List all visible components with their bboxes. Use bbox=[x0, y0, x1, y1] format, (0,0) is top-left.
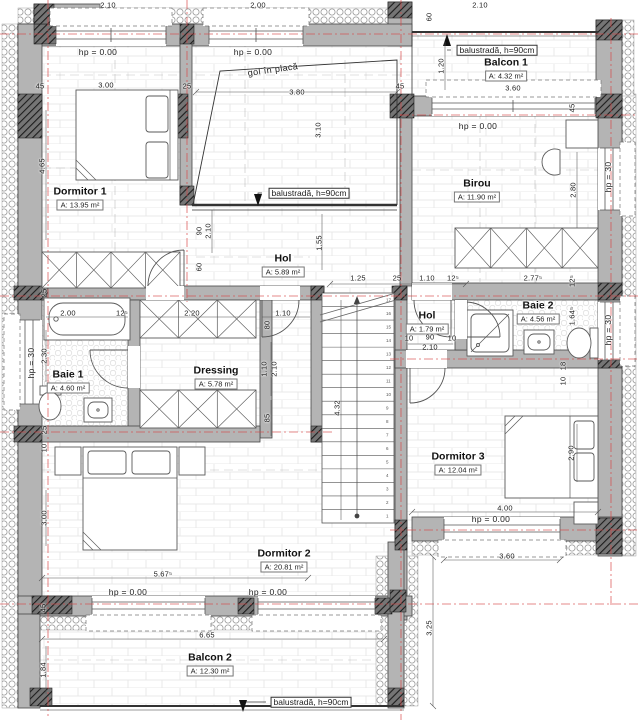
dimension-label: 12⁵ bbox=[447, 274, 459, 282]
dimension-label: 1.64⁵ bbox=[568, 307, 576, 326]
room-name: Birou bbox=[463, 178, 490, 190]
dimension-label: 2.20 bbox=[184, 309, 199, 317]
dimension-label: 12⁵ bbox=[568, 275, 576, 287]
room-area: A: 12.30 m² bbox=[187, 666, 234, 677]
room-label: Dormitor 1A: 13.95 m² bbox=[53, 186, 106, 211]
parapet-height-label: hp = 30 bbox=[27, 348, 36, 379]
room-area: A: 4.32 m² bbox=[485, 71, 528, 82]
balustrade-callout: balustradă, h=90cm bbox=[457, 45, 538, 56]
dimension-label: 12⁵ bbox=[116, 309, 128, 317]
parapet-height-label: hp = 0.00 bbox=[109, 588, 147, 597]
desk bbox=[566, 120, 598, 148]
room-name: Balcon 1 bbox=[484, 57, 528, 69]
dimension-label: 1.55 bbox=[315, 235, 323, 250]
dimension-label: 3.80 bbox=[289, 88, 304, 96]
room-area: A: 5.78 m² bbox=[195, 379, 238, 390]
bathtub bbox=[44, 298, 130, 340]
room-area: A: 20.81 m² bbox=[261, 562, 308, 573]
dimension-label: 45 bbox=[568, 104, 576, 113]
parapet-height-label: hp = 0.00 bbox=[459, 122, 497, 131]
dimension-label: 90 bbox=[195, 227, 203, 236]
parapet-height-label: hp = 0.00 bbox=[234, 48, 272, 57]
room-area: A: 4.56 m² bbox=[517, 314, 560, 325]
room-area: A: 4.60 m² bbox=[47, 383, 90, 394]
dimension-label: 1.10 bbox=[260, 361, 268, 376]
room-name: Dressing bbox=[194, 365, 239, 377]
stair-step-number: 16 bbox=[386, 311, 392, 316]
dimension-label: 25 bbox=[40, 289, 48, 298]
room-name: Balcon 2 bbox=[188, 652, 232, 664]
room-label: HolA: 1.79 m² bbox=[406, 310, 449, 335]
room-name: Hol bbox=[419, 310, 436, 322]
dimension-label: 1.84 bbox=[39, 662, 47, 677]
dimension-label: 1.20 bbox=[437, 58, 445, 73]
stair-step-number: 12 bbox=[386, 365, 392, 370]
dimension-label: 80 bbox=[263, 321, 271, 330]
stair-step-number: 14 bbox=[386, 338, 392, 343]
dimension-label: 2.00 bbox=[250, 1, 265, 9]
dimension-label: 4.65 bbox=[38, 158, 46, 173]
dimension-label: 45 bbox=[36, 82, 45, 90]
room-label: BirouA: 11.90 m² bbox=[454, 178, 500, 203]
wardrobe-dormitor1 bbox=[42, 252, 180, 288]
dimension-label: 2.10 bbox=[204, 223, 212, 238]
dimension-label: 10 bbox=[40, 444, 48, 453]
balustrade-callout: balustradă, h=90cm bbox=[269, 188, 350, 199]
room-label: Balcon 2A: 12.30 m² bbox=[187, 652, 234, 677]
dimension-label: 2.10 bbox=[270, 361, 278, 376]
dimension-label: 18 bbox=[559, 362, 567, 371]
dimension-label: 85 bbox=[263, 414, 271, 423]
stair-step-number: 11 bbox=[386, 378, 391, 383]
dimension-label: 3.00 bbox=[40, 510, 48, 525]
dimension-label: 45 bbox=[39, 604, 47, 613]
wardrobe-birou bbox=[455, 228, 598, 268]
dimension-label: 3.10 bbox=[314, 122, 322, 137]
shower bbox=[467, 310, 513, 356]
parapet-height-label: hp = 30 bbox=[604, 162, 613, 193]
dimension-label: 2.10 bbox=[100, 1, 115, 9]
room-name: Baie 1 bbox=[53, 369, 84, 381]
dimension-label: 25 bbox=[40, 426, 48, 435]
dimension-label: 25 bbox=[393, 274, 402, 282]
dimension-label: 2.80 bbox=[569, 182, 577, 197]
room-name: Hol bbox=[275, 253, 292, 265]
dimension-label: 2.77⁵ bbox=[524, 274, 543, 282]
wardrobe-dressing-bottom bbox=[140, 390, 256, 428]
dimension-label: 1.25 bbox=[350, 274, 365, 282]
dimension-label: 5.67⁵ bbox=[154, 570, 173, 578]
dimension-label: 1.10 bbox=[275, 309, 290, 317]
parapet-height-label: hp = 0.00 bbox=[472, 515, 510, 524]
parapet-height-label: hp = 30 bbox=[604, 315, 613, 346]
room-label: Baie 2A: 4.56 m² bbox=[517, 300, 560, 325]
dimension-label: 2.90 bbox=[567, 445, 575, 460]
dimension-label: 60 bbox=[425, 13, 433, 22]
room-area: A: 5.89 m² bbox=[262, 267, 305, 278]
room-label: Dormitor 2A: 20.81 m² bbox=[257, 548, 310, 573]
dimension-label: 25 bbox=[183, 82, 192, 90]
floor-plan-drawing: 1234567891011121314151617 bbox=[0, 0, 638, 720]
room-name: Baie 2 bbox=[523, 300, 554, 312]
room-area: A: 13.95 m² bbox=[57, 200, 104, 211]
room-name: Dormitor 1 bbox=[53, 186, 106, 198]
dimension-label: 1.10 bbox=[419, 274, 434, 282]
room-label: Baie 1A: 4.60 m² bbox=[47, 369, 90, 394]
toilet-baie2 bbox=[567, 328, 598, 358]
sink-baie1 bbox=[84, 398, 112, 422]
stair-step-number: 10 bbox=[386, 392, 392, 397]
room-name: Dormitor 3 bbox=[431, 451, 484, 463]
sink-baie2 bbox=[524, 330, 554, 354]
dimension-label: 3.60 bbox=[505, 84, 520, 92]
room-area: A: 11.90 m² bbox=[454, 192, 500, 203]
dimension-label: 2.00 bbox=[60, 309, 75, 317]
dimension-label: 60 bbox=[195, 263, 203, 272]
stair-step-number: 15 bbox=[386, 324, 392, 329]
room-area: A: 12.04 m² bbox=[435, 465, 482, 476]
dimension-label: 10 bbox=[448, 334, 457, 342]
dimension-label: 2.10 bbox=[472, 1, 487, 9]
dimension-label: 4.32 bbox=[333, 400, 341, 415]
dimension-label: 3.60 bbox=[499, 552, 514, 560]
dimension-label: 4.00 bbox=[497, 504, 512, 512]
room-label: Balcon 1A: 4.32 m² bbox=[484, 57, 528, 82]
dimension-label: 3.25 bbox=[425, 620, 433, 635]
dimension-label: 3.00 bbox=[98, 81, 113, 89]
dimension-label: 90 bbox=[426, 333, 435, 341]
balustrade-callout: balustradă, h=90cm bbox=[271, 697, 352, 708]
dimension-label: 2.30 bbox=[40, 348, 48, 363]
parapet-height-label: hp = 0.00 bbox=[79, 48, 117, 57]
room-label: DressingA: 5.78 m² bbox=[194, 365, 239, 390]
dimension-label: 6.65 bbox=[199, 631, 214, 639]
floor-plan: 1234567891011121314151617 bbox=[0, 0, 638, 720]
room-label: Dormitor 3A: 12.04 m² bbox=[431, 451, 484, 476]
stair-step-number: 13 bbox=[386, 351, 392, 356]
room-name: Dormitor 2 bbox=[257, 548, 310, 560]
dimension-label: 10 bbox=[405, 334, 414, 342]
room-label: HolA: 5.89 m² bbox=[262, 253, 305, 278]
dimension-label: 2.10 bbox=[422, 343, 437, 351]
dimension-label: 10 bbox=[559, 377, 567, 386]
dimension-label: 45 bbox=[396, 82, 405, 90]
parapet-height-label: hp = 0.00 bbox=[249, 588, 287, 597]
wardrobe-dressing-top bbox=[140, 300, 256, 338]
